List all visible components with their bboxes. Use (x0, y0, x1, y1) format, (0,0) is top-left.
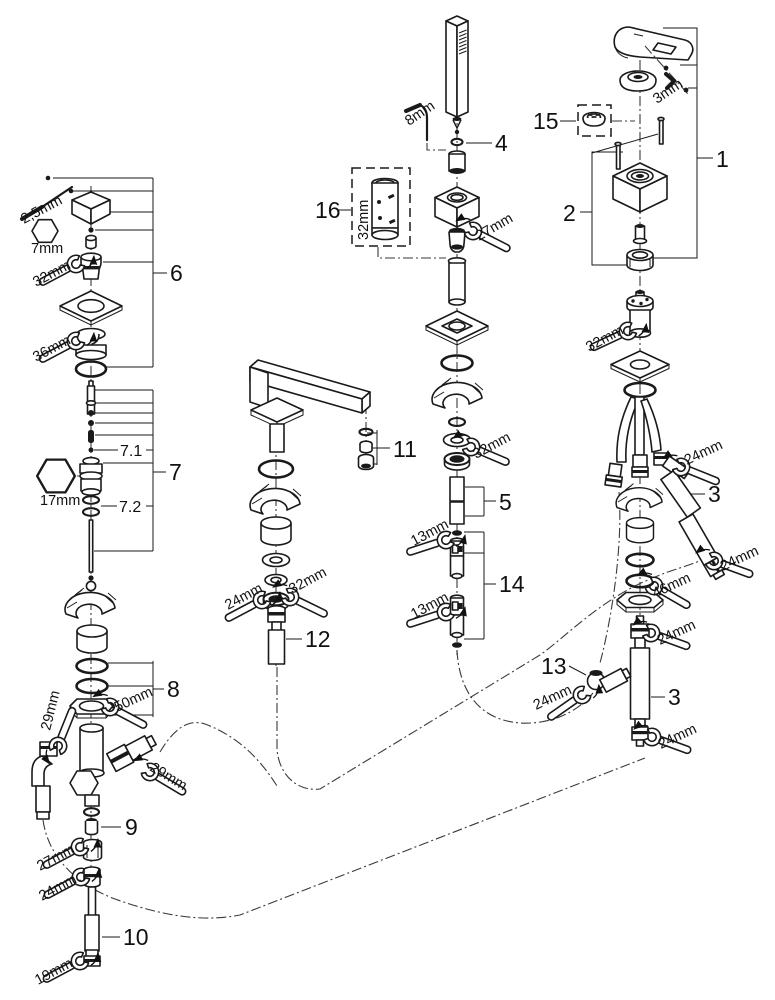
spacer-ring-right (627, 518, 654, 543)
callout-4: 4 (495, 130, 508, 156)
cartridge-32 (627, 290, 653, 337)
lift-rod-parts (80, 381, 102, 591)
hose-routing-lines (43, 492, 701, 918)
hex-7mm-icon (32, 220, 58, 243)
spacer-ring-spout (261, 517, 291, 545)
callout-7: 7 (169, 459, 182, 485)
callout-8: 8 (167, 676, 180, 702)
shower-nipple (449, 151, 465, 174)
size-w32-right: 32mm (583, 322, 626, 355)
supply-tubes (605, 397, 661, 487)
washer-spout-small (265, 575, 287, 586)
elbow-connector-left (32, 742, 57, 819)
clamp-escutcheon-right (616, 484, 663, 512)
washer-spout-large (263, 554, 290, 567)
size-hex-17: 17mm (40, 493, 80, 509)
cube-housing (613, 163, 667, 212)
cube-handle (72, 192, 110, 224)
left-column-parts (22, 176, 158, 966)
size-hex-7: 7mm (31, 241, 63, 257)
grub-screw-dot (46, 176, 51, 181)
diamond-escutcheon-mid (426, 311, 488, 345)
handle-screws (592, 117, 664, 169)
cartridge-stem (634, 224, 647, 244)
callout-6: 6 (170, 260, 183, 286)
square-escutcheon-left (60, 291, 122, 325)
spout-outlet-valve-11 (359, 429, 374, 470)
callout-11: 11 (393, 436, 417, 462)
callout-12: 12 (305, 626, 331, 652)
callout-16: 16 (315, 197, 341, 223)
callout-10: 10 (123, 924, 149, 950)
size-w19: 19mm (32, 955, 75, 988)
lever-handle (614, 27, 693, 60)
o-ring-8b (77, 679, 108, 693)
hand-shower (446, 16, 468, 134)
size-w32-spout: 32mm (286, 564, 329, 597)
size-w29-right: 29mm (147, 760, 190, 794)
callout-14: 14 (499, 571, 525, 597)
centerlines (91, 20, 640, 966)
size-tool16: 32mm (356, 200, 372, 240)
extension-springs-5 (450, 477, 464, 524)
callout-7-2: 7.2 (119, 499, 141, 516)
size-w24-elbow-upper: 24mm (682, 437, 725, 469)
callout-13: 13 (541, 653, 567, 679)
locknut-32-mid (445, 453, 470, 470)
callout-3-upper: 3 (708, 481, 721, 507)
exploded-diagram: 6 7.1 7 7.2 8 9 10 11 12 5 14 4 16 15 2 … (0, 0, 775, 1000)
callout-15: 15 (533, 108, 559, 134)
callout-9: 9 (125, 814, 138, 840)
dome-cap (620, 71, 656, 91)
shower-socket-27 (449, 228, 465, 252)
callout-2: 2 (563, 200, 576, 226)
size-w50: 50mm (112, 684, 155, 716)
callout-3-lower: 3 (668, 684, 681, 710)
spout-column-parts (250, 360, 374, 664)
callout-5: 5 (499, 489, 512, 515)
elbow-13 (588, 666, 632, 692)
shower-holder-tube (449, 258, 466, 305)
o-ring-8a (77, 659, 108, 673)
size-w27-left: 27mm (34, 841, 77, 874)
parts-diagram-page: 6 7.1 7 7.2 8 9 10 11 12 5 14 4 16 15 2 … (0, 0, 775, 1000)
size-w29-left: 29mm (38, 689, 63, 732)
size-w24-left: 24mm (36, 871, 79, 904)
size-w32-left: 32mm (30, 257, 73, 290)
diamond-escutcheon-right (611, 351, 669, 382)
spacer-ring-left (77, 625, 107, 653)
check-valve-9 (86, 818, 98, 835)
cartridge-retaining-nut (627, 250, 653, 271)
callout-7-1: 7.1 (120, 443, 142, 460)
adapter-sleeve (86, 235, 96, 248)
size-w36: 36mm (30, 332, 73, 365)
hex-17mm-icon (37, 460, 75, 493)
size-allen-8: 8mm (402, 98, 438, 129)
limiter-15-box (578, 105, 611, 136)
check-valves-14 (451, 530, 464, 648)
mixing-valve-body (70, 724, 104, 806)
spout-hose-12 (268, 606, 285, 664)
bath-spout (250, 360, 370, 452)
callout-1: 1 (716, 146, 729, 172)
